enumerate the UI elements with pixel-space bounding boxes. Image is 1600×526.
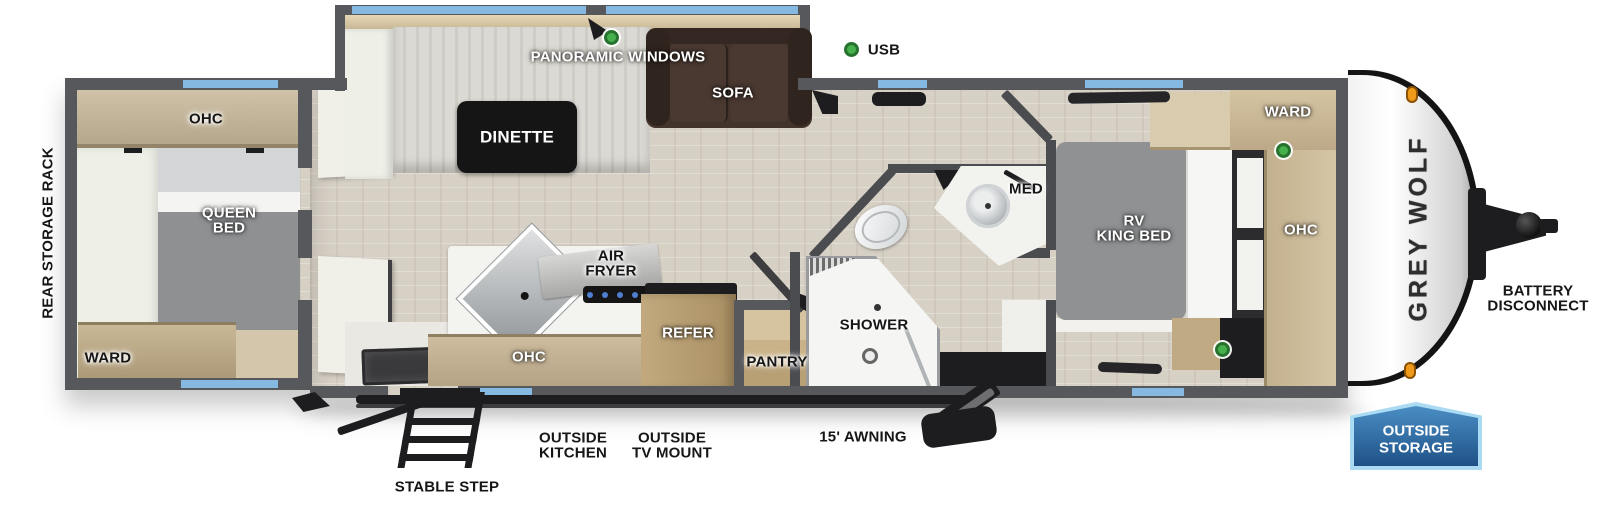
main-window-bottom-frontbed	[1132, 388, 1184, 396]
slideout-window-right	[606, 6, 798, 14]
pantry-shelf-1	[744, 310, 816, 340]
front-bench	[1172, 318, 1220, 370]
brand-logo: GREY WOLF	[1405, 135, 1434, 322]
usb-legend-dot	[844, 42, 859, 57]
refer-label: REFER	[662, 325, 714, 340]
shower-label: SHOWER	[840, 317, 909, 332]
shower-drain	[874, 304, 881, 311]
step-rung-3	[402, 436, 477, 443]
slideout-end-cabinet	[345, 29, 393, 179]
reading-light-top	[1068, 91, 1170, 104]
bed-shelf-unit	[1232, 148, 1268, 322]
main-wall-right	[1336, 78, 1348, 398]
rear-ward-label: WARD	[85, 350, 132, 365]
awning-label: 15' AWNING	[819, 429, 907, 444]
stable-step-ladder	[397, 392, 487, 470]
rear-window-bottom	[181, 380, 278, 388]
floorplan-canvas: GREY WOLF OUTSIDE STORAGE REAR STORAGE R…	[0, 0, 1600, 526]
outside-storage-badge: OUTSIDE STORAGE	[1350, 402, 1482, 470]
main-window-top-frontbed	[1085, 80, 1183, 88]
sofa-arm-right	[788, 28, 812, 126]
sofa-label: SOFA	[712, 85, 754, 100]
front-ward-label: WARD	[1265, 104, 1312, 119]
bed-bracket-right	[246, 148, 264, 153]
sofa-arm-left	[646, 28, 670, 126]
rear-ohc-cabinet	[77, 90, 298, 148]
king-bed-label: RV KING BED	[1097, 214, 1172, 245]
hitch-jack-bar	[1468, 188, 1486, 280]
panoramic-windows-label: PANORAMIC WINDOWS	[531, 49, 706, 64]
hitch-coupler	[1516, 212, 1542, 238]
sofa	[646, 28, 812, 128]
queen-bed-head	[158, 148, 300, 192]
med-sink-drain	[985, 203, 991, 209]
outside-storage-label: OUTSIDE STORAGE	[1379, 424, 1453, 457]
outside-kitchen-label: OUTSIDE KITCHEN	[539, 431, 607, 462]
air-fryer-label: AIR FRYER	[585, 249, 636, 280]
shelf-cubby-top	[1237, 158, 1263, 228]
usb-dot-front-bottom	[1215, 342, 1230, 357]
kitchen-ohc-label: OHC	[512, 349, 546, 364]
usb-dot-front-top	[1276, 143, 1291, 158]
marker-light-bottom	[1404, 362, 1416, 379]
usb-label: USB	[868, 42, 900, 57]
sink-drain	[519, 290, 530, 301]
bath-wall-right-seg2	[1046, 300, 1056, 390]
med-sink	[966, 184, 1010, 228]
hitch-stub	[1540, 219, 1558, 233]
rear-wall-right-seg3	[298, 300, 312, 390]
tv-bar	[872, 92, 926, 106]
sofa-cushion-right	[730, 44, 788, 122]
rear-wall-left	[65, 78, 77, 390]
front-ohc-label: OHC	[1284, 222, 1318, 237]
main-window-top-bath	[878, 80, 927, 88]
rear-wall-right-seg2	[298, 210, 312, 258]
rear-bench	[236, 330, 298, 378]
dinette-label: DINETTE	[480, 128, 554, 145]
slideout-window-left	[352, 6, 586, 14]
marker-light-top	[1406, 86, 1418, 103]
outside-tv-label: OUTSIDE TV MOUNT	[632, 431, 712, 462]
front-ohc-cabinet	[1264, 150, 1336, 392]
refrigerator	[641, 294, 736, 390]
rear-storage-rack-label: REAR STORAGE RACK	[40, 147, 55, 318]
pantry-wall-left	[734, 300, 744, 392]
bath-wall-right-seg1	[1046, 140, 1056, 250]
bed-bracket-left	[124, 148, 142, 153]
rear-ohc-label: OHC	[189, 111, 223, 126]
shower-faucet	[862, 348, 878, 364]
step-rung-1	[408, 400, 483, 407]
stable-step-label: STABLE STEP	[395, 479, 499, 494]
main-wall-top-stub	[310, 78, 347, 90]
med-label: MED	[1009, 181, 1043, 196]
step-rung-2	[405, 418, 480, 425]
step-rung-4	[399, 454, 474, 461]
queen-bed-label: QUEEN BED	[202, 206, 256, 237]
king-bed-pillows	[1186, 142, 1232, 320]
shelf-cubby-bottom	[1237, 240, 1263, 310]
pantry-label: PANTRY	[746, 354, 807, 369]
rear-wall-right-seg1	[298, 78, 312, 168]
battery-disconnect-label: BATTERY DISCONNECT	[1487, 284, 1588, 315]
bath-vanity-white	[1002, 300, 1046, 358]
panoramic-windows-dot	[604, 30, 619, 45]
rear-window-top	[183, 80, 278, 88]
